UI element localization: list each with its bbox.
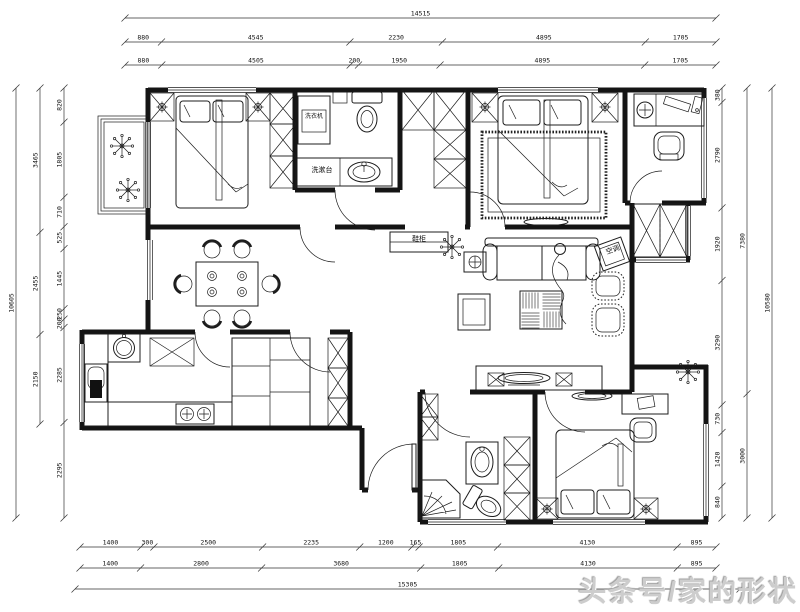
dimension-text: 1445 [56, 271, 64, 287]
chair-icon [233, 310, 251, 327]
chair-icon [233, 241, 251, 258]
dimension-text: 4895 [535, 57, 551, 65]
dimension-text: 3000 [739, 448, 747, 464]
chair-icon [262, 275, 279, 293]
dimension-text: 1705 [673, 34, 689, 42]
plant-icon [110, 134, 133, 157]
dimension-text: 14515 [411, 10, 431, 18]
dimension-text: 200 [348, 57, 360, 65]
dimension-text: 10580 [764, 293, 772, 313]
chair-icon [203, 241, 221, 258]
dimension-text: 820 [56, 99, 64, 111]
wash-counter-label: 洗漱台 [300, 167, 344, 174]
washing-machine-label: 洗衣机 [299, 114, 329, 120]
dimension-text: 2235 [303, 539, 319, 547]
dimension-text: 380 [714, 89, 722, 101]
dimension-text: 840 [714, 496, 722, 508]
dimension-text: 1950 [391, 57, 407, 65]
chair-icon [175, 275, 192, 293]
dimension-text: 730 [714, 413, 722, 425]
dimension-text: 1705 [673, 57, 689, 65]
bathroom-bottom [420, 442, 505, 522]
dimension-text: 525 [56, 232, 64, 244]
dimension-text: 300 [142, 539, 154, 547]
dimension-text: 15305 [398, 581, 418, 589]
dimension-text: 4545 [248, 34, 264, 42]
dimension-text: 2790 [714, 147, 722, 163]
dimension-text: 2800 [193, 560, 209, 568]
bedroom-bottom-right [556, 392, 668, 518]
dimension-text: 4505 [248, 57, 264, 65]
dimension-text: 1420 [714, 451, 722, 467]
dimension-text: 710 [56, 206, 64, 218]
plant-icon [440, 235, 463, 258]
dimension-text: 3290 [714, 335, 722, 351]
dimension-text: 3465 [32, 152, 40, 168]
cabinets-and-plants [110, 90, 699, 520]
dimension-text: 2295 [56, 462, 64, 478]
windows [78, 86, 711, 527]
dimension-text: 1805 [450, 539, 466, 547]
plant-icon [676, 360, 699, 383]
dimension-text: 10605 [8, 293, 16, 313]
tv-cabinet [476, 366, 602, 390]
dimension-text: 895 [691, 560, 703, 568]
plant-icon [116, 178, 139, 201]
dimension-text: 880 [137, 34, 149, 42]
dimension-text: 1200 [378, 539, 394, 547]
dimension-text: 880 [138, 57, 150, 65]
dimension-text: 895 [691, 539, 703, 547]
person-figure [555, 244, 566, 255]
dimension-text: 1805 [452, 560, 468, 568]
kitchen [84, 334, 232, 426]
bedroom-top-left [176, 96, 248, 208]
shoe-cabinet-label: 鞋柜 [396, 236, 442, 243]
dimension-text: 4130 [580, 560, 596, 568]
dimension-text: 4130 [579, 539, 595, 547]
floorplan-drawing: 1451588045452230489517058804505200195048… [0, 0, 800, 612]
dimension-text: 1920 [714, 236, 722, 252]
dimension-text: 2150 [32, 371, 40, 387]
bay-window [98, 116, 150, 214]
dimension-text: 2285 [56, 367, 64, 383]
dimension-text: 1400 [102, 560, 118, 568]
floorplan-canvas: 1451588045452230489517058804505200195048… [0, 0, 800, 612]
dimension-text: 3680 [333, 560, 349, 568]
dining-area [196, 262, 258, 306]
hall-closet [232, 338, 310, 426]
master-bedroom [482, 96, 606, 226]
toilet [462, 485, 505, 523]
chair-icon [203, 310, 221, 327]
dimension-text: 200 [56, 317, 64, 329]
dimension-lines: 1451588045452230489517058804505200195048… [8, 10, 776, 593]
watermark: 头条号/家的形状 [578, 570, 798, 610]
dimension-text: 2500 [200, 539, 216, 547]
dimension-text: 1400 [103, 539, 119, 547]
dimension-text: 1805 [56, 152, 64, 168]
dimension-text: 2230 [388, 34, 404, 42]
dimension-text: 165 [410, 539, 422, 547]
dimension-text: 4895 [536, 34, 552, 42]
dimension-text: 2455 [32, 275, 40, 291]
dimension-text: 7380 [739, 233, 747, 249]
study-room [634, 94, 704, 160]
